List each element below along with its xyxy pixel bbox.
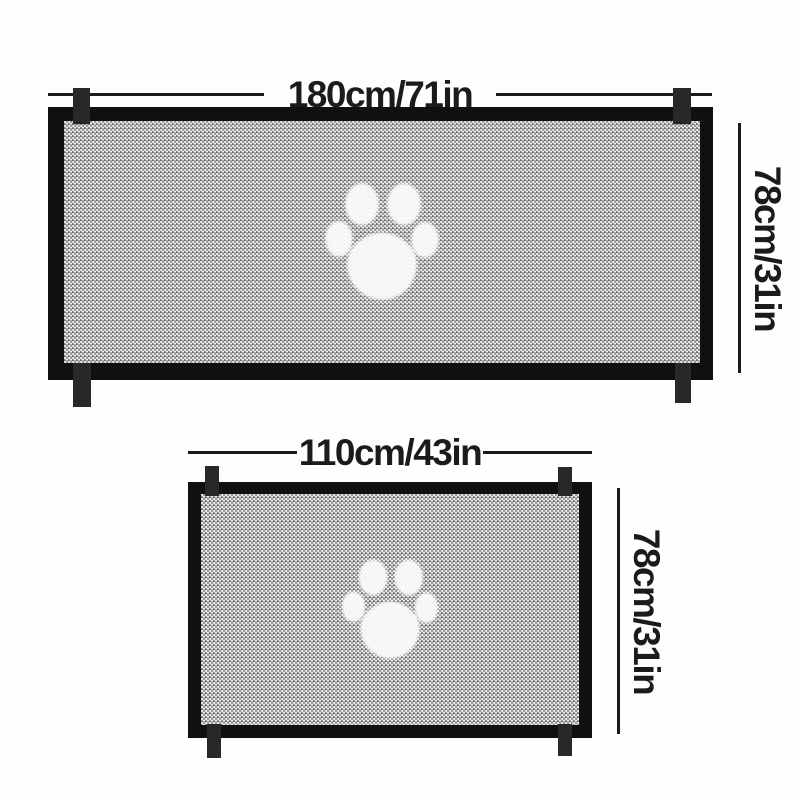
height-label-large: 78cm/31in — [742, 123, 794, 373]
gate-frame-small — [188, 482, 592, 738]
dimension-line-vertical — [617, 488, 620, 734]
mounting-tab-bottom-right — [558, 724, 572, 756]
mesh-panel-large — [64, 121, 700, 363]
width-label-small: 110cm/43in — [299, 434, 481, 471]
width-dimension-small: 110cm/43in — [188, 432, 592, 472]
paw-print-icon — [340, 557, 440, 662]
mounting-tab-bottom-left — [73, 363, 91, 407]
dimension-line-vertical — [738, 123, 741, 373]
height-label-small: 78cm/31in — [621, 488, 673, 734]
dimension-line-right — [483, 451, 592, 454]
paw-print-icon — [323, 180, 441, 304]
mounting-tab-bottom-right — [675, 363, 691, 403]
mounting-tab-top-right — [673, 88, 691, 124]
gate-frame-large — [48, 107, 713, 380]
pet-gate-size-diagram: 180cm/71in — [0, 0, 800, 800]
mesh-panel-small — [201, 494, 579, 725]
mounting-tab-top-right — [558, 467, 572, 496]
mounting-tab-top-left — [205, 466, 219, 496]
mounting-tab-bottom-left — [207, 724, 221, 758]
dimension-line-left — [188, 451, 297, 454]
mounting-tab-top-left — [73, 88, 90, 124]
